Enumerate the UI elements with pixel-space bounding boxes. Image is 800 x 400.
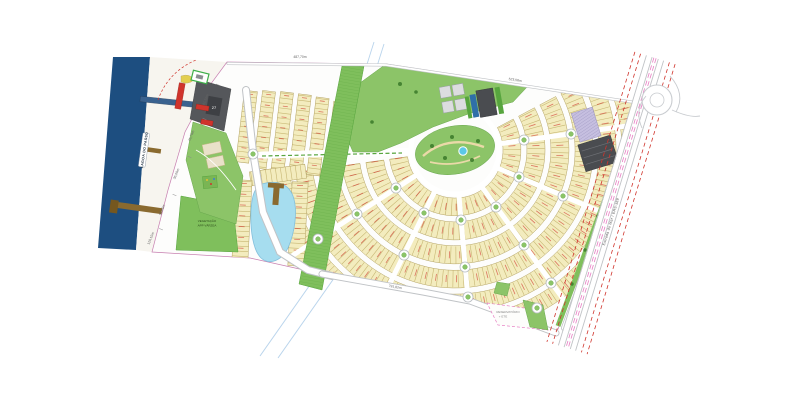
pond-pier (272, 187, 279, 205)
tree-icon (583, 248, 586, 251)
roundabout (456, 215, 466, 225)
playground-equipment-icon (213, 178, 215, 180)
vegetation-label-line2: APP VÁRZEA (198, 224, 217, 228)
roundabout (546, 278, 556, 288)
roundabout (532, 303, 542, 313)
roundabout (460, 262, 470, 272)
master-plan-map: LAGOA DO PASSO (0, 0, 800, 400)
reservoir-label-line1: RESERVATÓRIO (496, 309, 520, 314)
roundabout (248, 149, 258, 159)
tree-icon (414, 90, 418, 94)
playground-equipment-icon (206, 179, 208, 181)
roundabout (419, 208, 429, 218)
roundabout (566, 129, 576, 139)
roundabout-island (650, 93, 664, 107)
roundabout (558, 191, 568, 201)
north-east-dimension: 523,58m (508, 77, 522, 83)
tree-icon (398, 82, 402, 86)
roundabout (313, 234, 323, 244)
roundabout (491, 202, 501, 212)
roundabout (391, 183, 401, 193)
playground-equipment-icon (210, 183, 212, 185)
club-parking-square (452, 83, 465, 96)
roundabout (519, 240, 529, 250)
reservoir-label-line2: + ETE (499, 315, 507, 319)
playground (203, 175, 218, 188)
club-parking-square (442, 100, 455, 113)
park-pool (459, 147, 467, 155)
tree-icon (443, 156, 447, 160)
club-parking-square (439, 86, 452, 99)
roundabout (514, 172, 524, 182)
tree-icon (470, 158, 474, 162)
north-west-dimension: 487,70m (293, 55, 306, 59)
ramp (670, 76, 680, 112)
roundabout (399, 250, 409, 260)
tree-icon (450, 135, 454, 139)
block-number-label: 27 (212, 105, 217, 110)
tree-icon (430, 144, 434, 148)
site-plan-canvas: LAGOA DO PASSO (0, 0, 800, 400)
roundabout (463, 292, 473, 302)
vegetation-label-line1: VEGETAÇÃO (198, 218, 217, 223)
tree-icon (370, 120, 374, 124)
roundabout (519, 135, 529, 145)
roundabout (352, 209, 362, 219)
tree-icon (476, 139, 480, 143)
